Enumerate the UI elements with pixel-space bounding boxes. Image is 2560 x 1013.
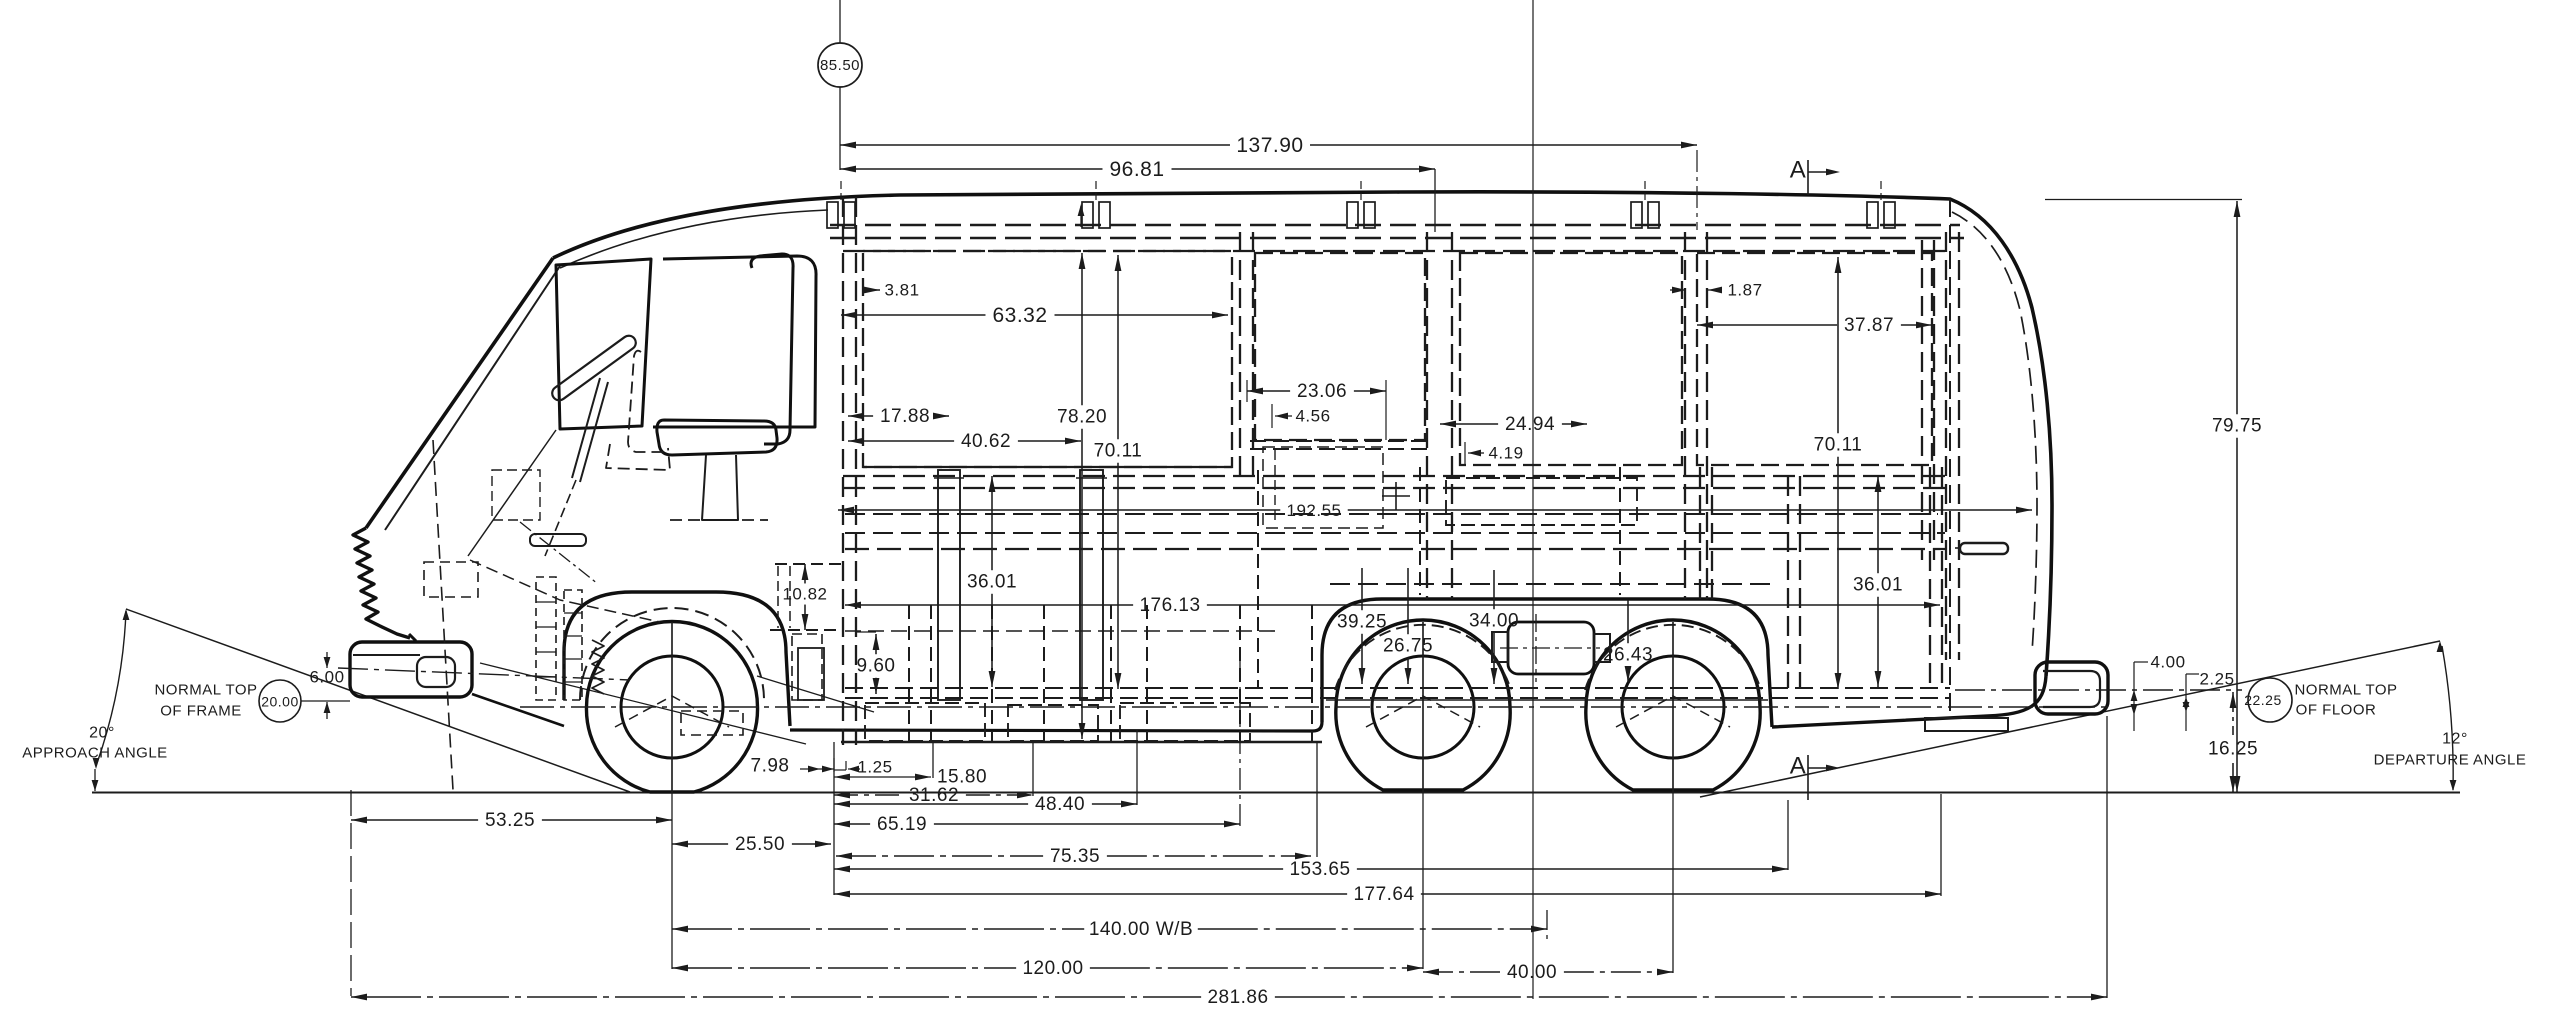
svg-text:70.11: 70.11 — [1094, 441, 1143, 462]
svg-text:9.60: 9.60 — [857, 656, 896, 677]
svg-text:153.65: 153.65 — [1289, 859, 1350, 880]
svg-text:10.82: 10.82 — [782, 585, 827, 604]
svg-text:176.13: 176.13 — [1139, 595, 1200, 616]
svg-text:177.64: 177.64 — [1353, 884, 1414, 905]
svg-text:6.00: 6.00 — [309, 668, 344, 687]
svg-text:120.00: 120.00 — [1022, 958, 1083, 979]
svg-text:192.55: 192.55 — [1287, 501, 1342, 520]
svg-text:1.87: 1.87 — [1727, 281, 1762, 300]
svg-text:26.75: 26.75 — [1383, 636, 1433, 657]
svg-text:2.25: 2.25 — [2199, 670, 2234, 689]
svg-text:25.50: 25.50 — [735, 834, 785, 855]
svg-text:20.00: 20.00 — [261, 694, 299, 710]
svg-text:75.35: 75.35 — [1050, 846, 1100, 867]
svg-text:96.81: 96.81 — [1109, 158, 1164, 181]
svg-text:137.90: 137.90 — [1236, 134, 1303, 157]
svg-text:OF FRAME: OF FRAME — [160, 703, 242, 720]
svg-text:24.94: 24.94 — [1505, 414, 1555, 435]
svg-text:65.19: 65.19 — [877, 814, 927, 835]
svg-text:48.40: 48.40 — [1035, 794, 1085, 815]
svg-text:23.06: 23.06 — [1297, 381, 1347, 402]
svg-text:26.43: 26.43 — [1603, 645, 1653, 666]
svg-text:85.50: 85.50 — [820, 57, 860, 74]
svg-text:63.32: 63.32 — [992, 304, 1047, 327]
svg-text:A: A — [1790, 157, 1807, 184]
svg-text:3.81: 3.81 — [884, 281, 919, 300]
svg-text:17.88: 17.88 — [880, 406, 930, 427]
svg-text:7.98: 7.98 — [751, 756, 790, 777]
svg-text:16.25: 16.25 — [2208, 739, 2258, 760]
svg-text:31.62: 31.62 — [909, 785, 959, 806]
svg-text:22.25: 22.25 — [2244, 692, 2282, 708]
svg-text:70.11: 70.11 — [1814, 435, 1863, 456]
svg-text:12°: 12° — [2442, 731, 2468, 748]
svg-text:20°: 20° — [89, 725, 115, 742]
svg-text:140.00 W/B: 140.00 W/B — [1089, 919, 1193, 940]
svg-text:1.25: 1.25 — [857, 758, 892, 777]
svg-text:53.25: 53.25 — [485, 810, 535, 831]
svg-text:NORMAL TOP: NORMAL TOP — [2294, 682, 2397, 699]
svg-text:34.00: 34.00 — [1469, 611, 1519, 632]
svg-text:APPROACH ANGLE: APPROACH ANGLE — [22, 745, 167, 762]
svg-text:OF FLOOR: OF FLOOR — [2296, 702, 2377, 719]
svg-text:281.86: 281.86 — [1207, 987, 1268, 1008]
svg-text:4.19: 4.19 — [1488, 444, 1523, 463]
svg-text:DEPARTURE ANGLE: DEPARTURE ANGLE — [2374, 752, 2527, 769]
svg-text:37.87: 37.87 — [1844, 315, 1894, 336]
svg-text:4.56: 4.56 — [1295, 407, 1330, 426]
svg-text:39.25: 39.25 — [1337, 612, 1387, 633]
svg-text:4.00: 4.00 — [2150, 653, 2185, 672]
svg-text:36.01: 36.01 — [967, 572, 1017, 593]
svg-text:79.75: 79.75 — [2212, 416, 2262, 437]
svg-text:40.00: 40.00 — [1507, 962, 1557, 983]
svg-text:A: A — [1790, 753, 1807, 780]
svg-text:40.62: 40.62 — [961, 431, 1011, 452]
svg-text:36.01: 36.01 — [1853, 575, 1903, 596]
svg-text:NORMAL TOP: NORMAL TOP — [154, 682, 257, 699]
svg-text:78.20: 78.20 — [1057, 407, 1107, 428]
